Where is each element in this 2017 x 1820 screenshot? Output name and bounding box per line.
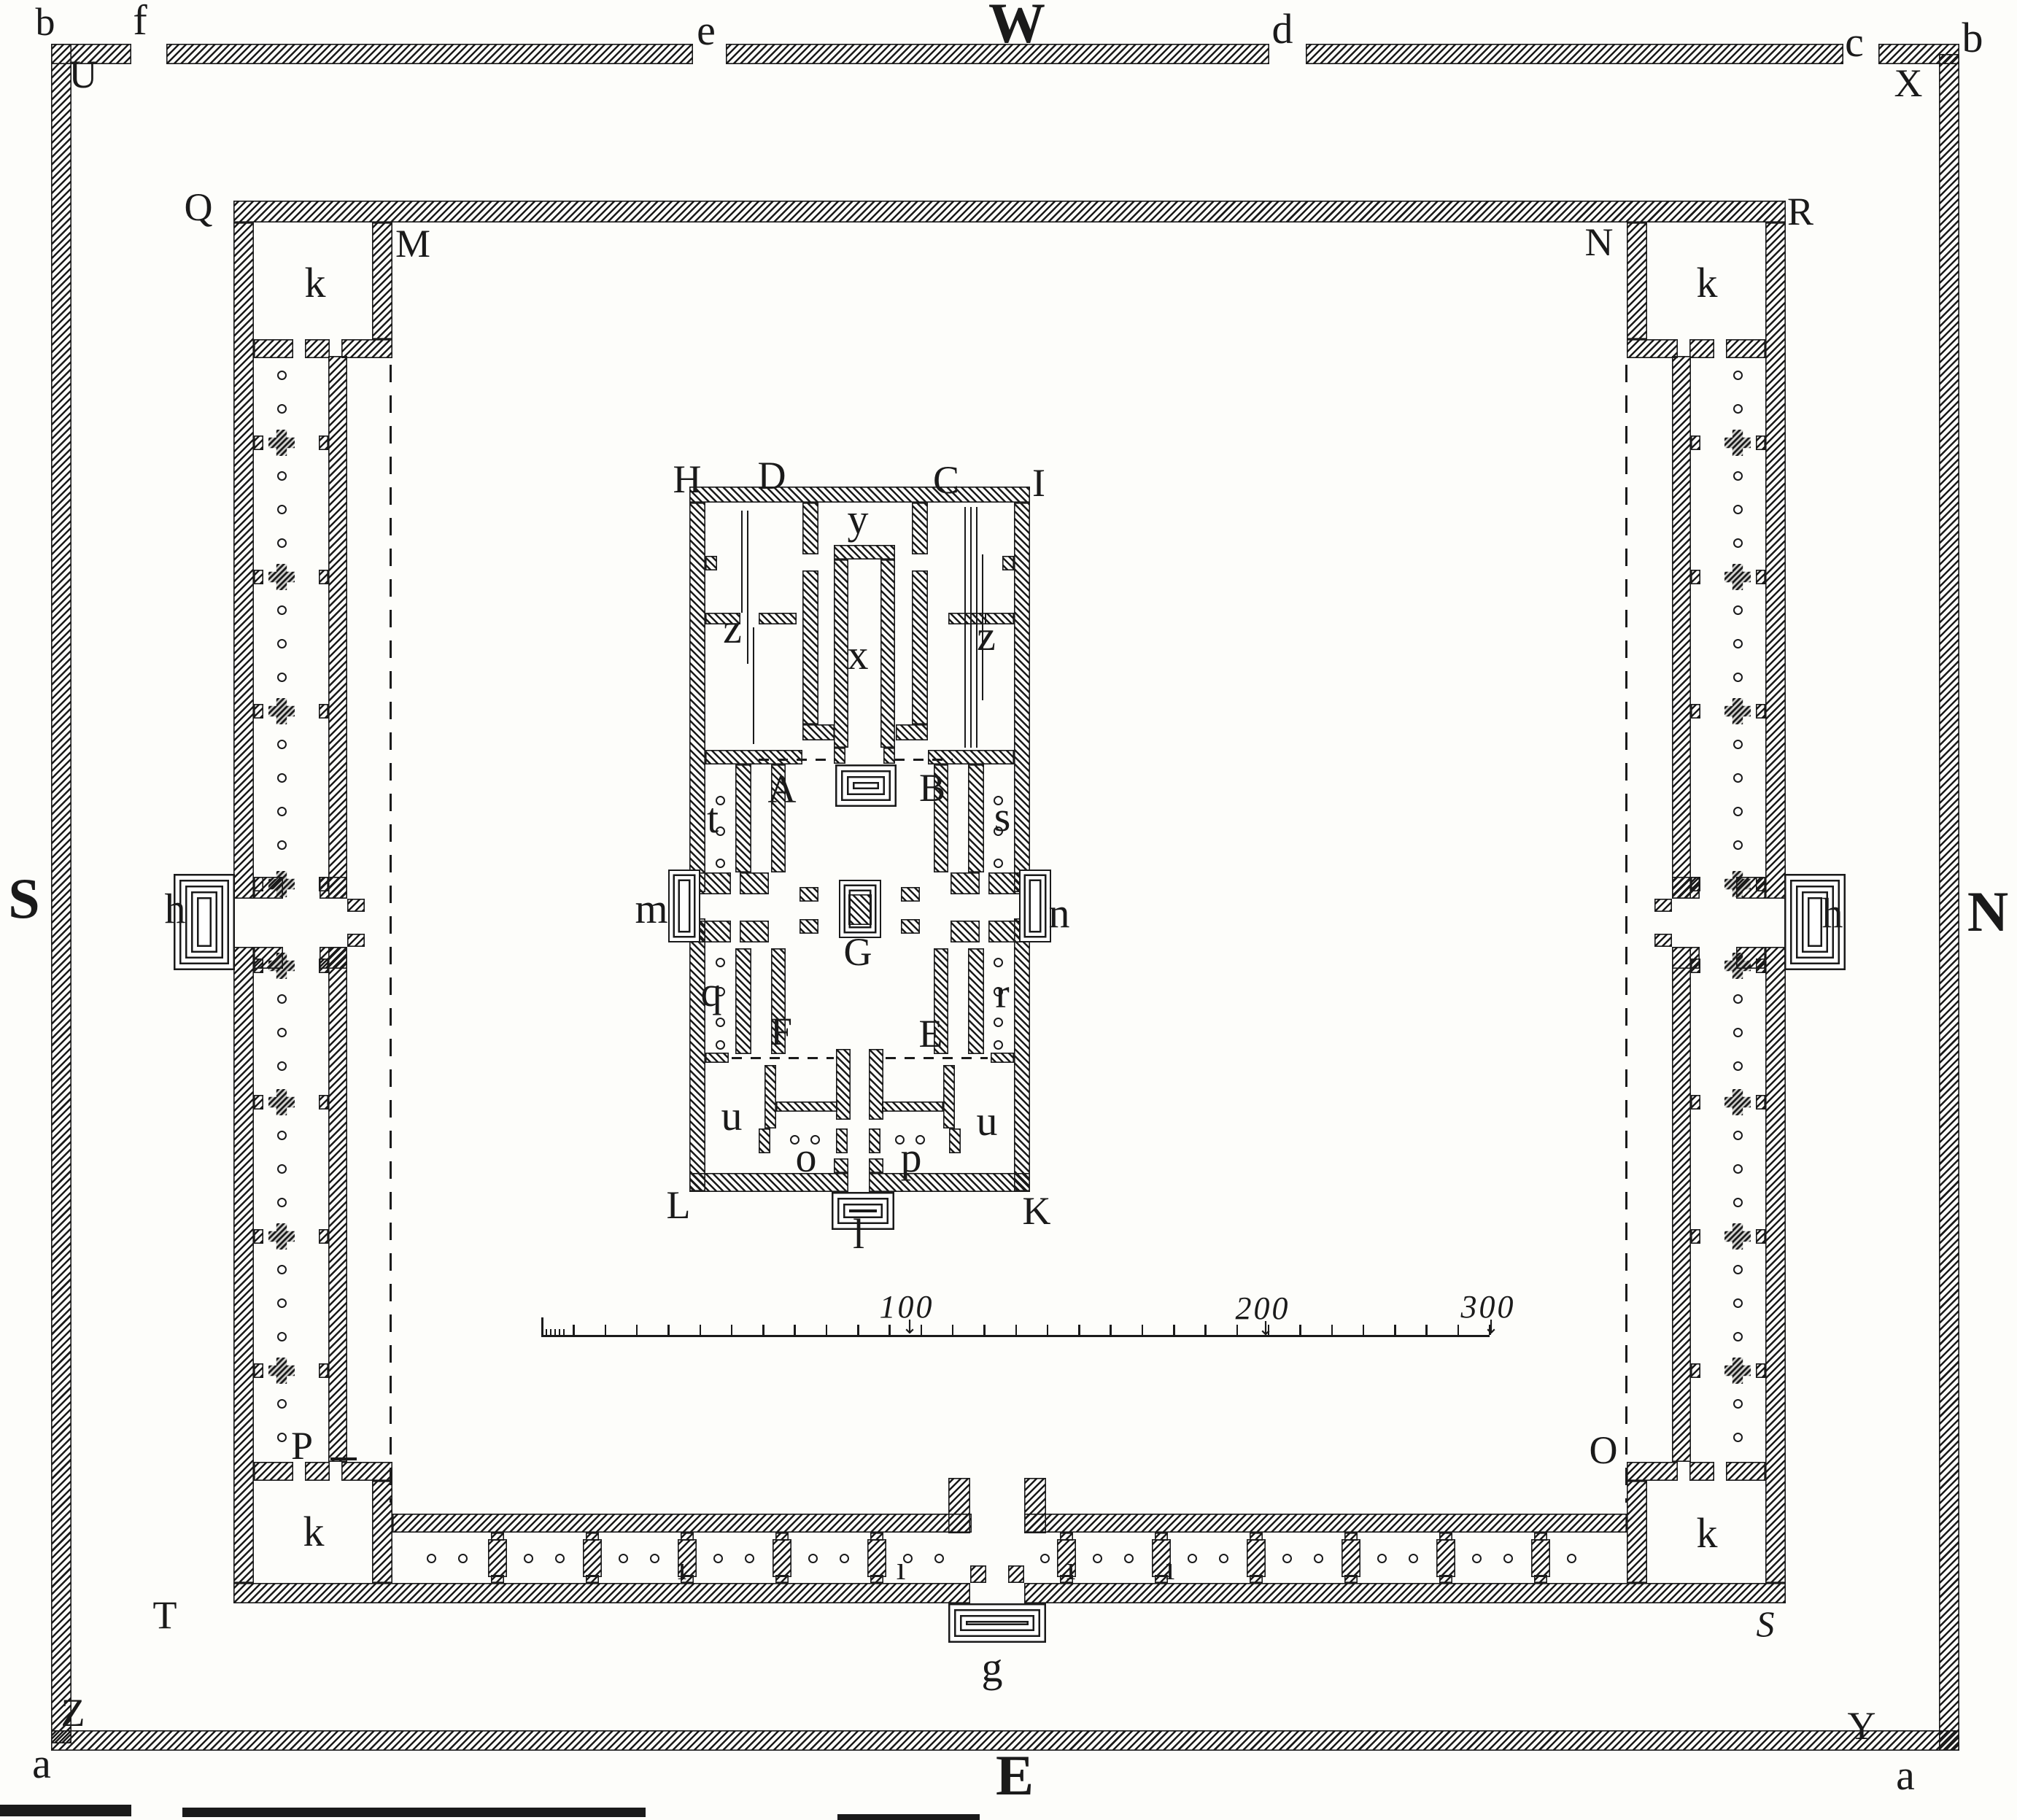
scale-tick <box>1425 1325 1428 1335</box>
wall-pilaster <box>1756 1229 1765 1244</box>
wall-pilaster <box>254 959 263 973</box>
scale-tick <box>1015 1325 1018 1335</box>
plan-label-O: O <box>1590 1430 1618 1470</box>
court-wing-wall <box>735 764 751 872</box>
scale-tick <box>1173 1325 1175 1335</box>
colonnade-inner-wall-left <box>328 947 347 1462</box>
wall-pilaster <box>1534 1575 1547 1583</box>
gate-l-pier <box>836 1049 851 1120</box>
plan-label-scale_300: 300 <box>1461 1291 1516 1323</box>
wall-pilaster <box>1060 1533 1073 1541</box>
column-dot <box>458 1554 468 1563</box>
cross-pier <box>1724 1223 1751 1250</box>
cross-pier <box>1724 430 1751 456</box>
hall-wall <box>991 1053 1014 1063</box>
plan-label-u_right: u <box>977 1100 998 1142</box>
column-dot <box>1124 1554 1134 1563</box>
plan-label-k_br: k <box>1697 1512 1718 1554</box>
column-dot <box>277 773 287 783</box>
wall-pilaster <box>775 1533 789 1541</box>
scale-tick <box>1363 1325 1365 1335</box>
wall-pilaster <box>319 1095 328 1110</box>
sanctuary-outer-wall <box>802 503 818 554</box>
gate-m-portal <box>668 870 700 942</box>
k-room-wall <box>1689 339 1714 358</box>
plan-label-k_tl: k <box>305 262 326 304</box>
plan-label-d: d <box>1272 8 1293 50</box>
enclosure-wall-left <box>233 222 254 899</box>
plan-label-E_court: E <box>919 1014 943 1053</box>
column-dot <box>1733 605 1743 615</box>
scale-tick <box>794 1325 796 1335</box>
column-dot <box>277 673 287 682</box>
column-dot <box>745 1554 754 1563</box>
wall-pilaster <box>1534 1533 1547 1541</box>
plan-label-y: y <box>848 498 869 541</box>
gate-m-pier <box>800 919 818 934</box>
shrine-jamb <box>834 748 845 764</box>
column-dot <box>277 471 287 481</box>
column-dot <box>277 1164 287 1174</box>
plan-label-F: F <box>770 1012 792 1051</box>
scale-tick <box>921 1325 923 1335</box>
texture-line <box>753 627 754 744</box>
column-dot <box>277 1198 287 1207</box>
plan-label-h_left: h <box>165 888 186 930</box>
column-dot <box>716 1018 725 1027</box>
k-room-wall <box>1726 1462 1765 1481</box>
plan-label-G: G <box>844 932 872 972</box>
column-dot <box>1733 994 1743 1004</box>
enclosure-wall-right <box>1765 947 1786 1583</box>
column-dot <box>1282 1554 1292 1563</box>
wall-pilaster <box>1756 435 1765 450</box>
scale-subtick <box>554 1329 556 1335</box>
sanctuary-outer-wall <box>912 570 928 724</box>
column-dot <box>1409 1554 1418 1563</box>
column-dot <box>1188 1554 1197 1563</box>
plan-label-P: P <box>291 1426 313 1465</box>
wall-pilaster <box>1691 1095 1700 1110</box>
column-dot <box>1733 371 1743 380</box>
scale-tick-end <box>541 1317 543 1335</box>
plan-label-E_compass: E <box>996 1747 1035 1804</box>
sanctuary-outer-wall <box>802 570 818 724</box>
scale-subtick <box>563 1329 565 1335</box>
colonnade-pier <box>1436 1539 1455 1577</box>
scale-tick <box>952 1325 954 1335</box>
plate-edge-strip <box>837 1814 980 1820</box>
column-dot <box>1733 1332 1743 1341</box>
wall-pilaster <box>1756 1095 1765 1110</box>
gate-g-pier <box>1024 1478 1046 1533</box>
outer-wall-right <box>1939 54 1959 1751</box>
texture-line <box>964 507 966 748</box>
gate-l-pier <box>869 1049 883 1120</box>
gate-n-jamb <box>951 872 980 894</box>
plan-label-e: e <box>697 9 716 52</box>
column-dot <box>934 1554 944 1563</box>
plan-label-Q: Q <box>185 187 213 227</box>
column-dot <box>1040 1554 1050 1563</box>
column-dot <box>1733 1164 1743 1174</box>
scale-subtick <box>546 1329 547 1335</box>
scale-tick <box>1078 1325 1080 1335</box>
wall-pilaster <box>870 1575 883 1583</box>
scale-tick <box>762 1325 764 1335</box>
column-dot <box>277 1028 287 1037</box>
wall-pilaster <box>254 1229 263 1244</box>
wall-pilaster <box>1756 959 1765 973</box>
cross-pier <box>268 698 295 724</box>
plan-label-b_tr: b <box>1962 17 1983 59</box>
gate-l-jamb <box>834 1158 848 1173</box>
gate-m-jamb <box>740 921 769 942</box>
column-dot <box>1472 1554 1482 1563</box>
sanctuary-outer-wall <box>912 503 928 554</box>
column-dot <box>277 505 287 514</box>
plate-edge-strip <box>182 1808 646 1817</box>
plan-label-i2: ı <box>897 1552 906 1585</box>
plan-label-K: K <box>1023 1191 1051 1231</box>
k-room-wall <box>1726 339 1765 358</box>
k-room-wall <box>254 339 293 358</box>
wall-pilaster <box>586 1575 599 1583</box>
colonnade-inner-wall-right <box>1672 356 1691 899</box>
hall-dashed-line <box>886 1057 988 1059</box>
gate-l-jamb <box>869 1158 883 1173</box>
column-dot <box>1733 1131 1743 1140</box>
column-dot <box>1733 740 1743 749</box>
inner-room-wall <box>776 1101 837 1112</box>
plan-label-N_wall: N <box>1585 222 1614 262</box>
court-wing-wall <box>968 948 984 1054</box>
column-dot <box>994 958 1003 967</box>
column-dot <box>1733 773 1743 783</box>
plan-label-T: T <box>153 1595 177 1635</box>
cross-pier <box>268 564 295 590</box>
plan-label-Y: Y <box>1848 1706 1876 1746</box>
scale-tick <box>636 1325 638 1335</box>
cross-pier <box>1724 1358 1751 1384</box>
scale-tick <box>857 1325 859 1335</box>
column-dot <box>1503 1554 1513 1563</box>
wall-pilaster <box>1250 1575 1263 1583</box>
plan-label-k_tr: k <box>1697 262 1718 304</box>
wall-pilaster <box>870 1533 883 1541</box>
plan-label-N_compass: N <box>1967 883 2010 940</box>
plan-label-m: m <box>635 888 667 930</box>
gate-n-jamb <box>988 921 1021 942</box>
scale-tick <box>1204 1325 1207 1335</box>
scale-tick <box>1394 1325 1396 1335</box>
enclosure-wall-bottom <box>1024 1583 1786 1603</box>
column-dot <box>1733 1265 1743 1274</box>
plan-label-u_left: u <box>721 1095 743 1137</box>
column-dot <box>277 404 287 414</box>
k-room-wall <box>1627 1481 1647 1583</box>
plan-label-X: X <box>1894 63 1923 103</box>
colonnade-pier <box>1342 1539 1360 1577</box>
column-dot <box>808 1554 818 1563</box>
plan-label-scale_200: 200 <box>1236 1293 1290 1325</box>
wall-pilaster <box>491 1575 504 1583</box>
enclosure-wall-top <box>233 201 1786 222</box>
plan-label-x: x <box>848 634 869 676</box>
plan-label-o: o <box>796 1136 817 1179</box>
plan-label-W: W <box>988 0 1047 52</box>
column-dot <box>277 1061 287 1071</box>
column-dot <box>277 605 287 615</box>
colonnade-pier <box>1531 1539 1550 1577</box>
colonnade-pier <box>867 1539 886 1577</box>
plan-label-s: s <box>994 796 1011 838</box>
gate-h-jamb <box>347 934 365 947</box>
plan-label-q: q <box>701 971 722 1013</box>
colonnade-inner-wall-right <box>1672 947 1691 1462</box>
wall-pilaster <box>775 1575 789 1583</box>
plan-label-z_left: z <box>723 608 742 650</box>
wall-pilaster <box>1691 570 1700 584</box>
plan-label-c: c <box>1845 21 1864 63</box>
shrine-jamb <box>883 748 895 764</box>
column-dot <box>427 1554 436 1563</box>
plan-label-H: H <box>673 460 702 499</box>
plan-label-k_bl: k <box>303 1511 325 1553</box>
column-dot <box>994 1040 1003 1050</box>
gate-n-portal <box>1019 870 1051 942</box>
cross-pier <box>268 1223 295 1250</box>
wall-pilaster <box>1439 1533 1452 1541</box>
column-dot <box>277 371 287 380</box>
plan-label-S_wall: S <box>1757 1606 1775 1642</box>
gate-m-pier <box>800 887 818 902</box>
plan-label-t: t <box>707 797 719 840</box>
gate-h-jamb <box>347 899 365 912</box>
scale-tick <box>1110 1325 1112 1335</box>
wall-pilaster <box>319 877 328 891</box>
gate-n-jamb <box>988 872 1021 894</box>
shrine-wall <box>834 559 848 748</box>
column-dot <box>1733 673 1743 682</box>
column-dot <box>1733 538 1743 548</box>
cross-pier <box>268 1089 295 1115</box>
temple-wall-bottom <box>689 1173 848 1192</box>
k-room-wall <box>1689 1462 1714 1481</box>
wall-pilaster <box>1439 1575 1452 1583</box>
central-altar-core <box>848 894 872 925</box>
plan-label-z_right: z <box>977 615 996 657</box>
column-dot <box>277 840 287 850</box>
plan-label-S_compass: S <box>8 870 41 927</box>
column-dot <box>1093 1554 1102 1563</box>
column-dot <box>1733 1061 1743 1071</box>
column-dot <box>1567 1554 1576 1563</box>
column-dot <box>994 859 1003 868</box>
gate-g-portal <box>948 1603 1046 1643</box>
court-dashed-line <box>759 759 836 761</box>
plan-label-R: R <box>1787 192 1813 231</box>
hall-dashed-line <box>732 1057 834 1059</box>
wall-pilaster <box>1250 1533 1263 1541</box>
portico-pier <box>836 1128 848 1153</box>
temple-wall-left <box>689 503 705 892</box>
cross-pier <box>268 1358 295 1384</box>
enclosure-wall-right <box>1765 222 1786 899</box>
temple-ground-plan: ↓↓↓bfeWdcbUXSNEZaYaQMNRPOTSkkkkhhgııııHD… <box>0 0 2017 1820</box>
chamber-partition <box>759 613 797 624</box>
gate-g-jamb <box>1008 1565 1024 1583</box>
wall-pilaster <box>1756 570 1765 584</box>
column-dot <box>555 1554 565 1563</box>
column-dot <box>619 1554 628 1563</box>
temple-wall-bottom <box>869 1173 1030 1192</box>
column-dot <box>1733 1433 1743 1442</box>
colonnade-wall-bottom <box>1024 1514 1627 1533</box>
gate-n-pier <box>901 887 920 902</box>
court-wing-wall <box>735 948 751 1054</box>
column-dot <box>1733 404 1743 414</box>
plan-label-scale_100: 100 <box>880 1291 934 1323</box>
k-room-wall <box>1627 1462 1678 1481</box>
plan-label-p: p <box>901 1136 922 1179</box>
temple-wall-right <box>1014 918 1030 1191</box>
sanctuary-outer-foot <box>896 724 928 740</box>
wall-pilaster <box>319 704 328 719</box>
wall-pilaster <box>254 1095 263 1110</box>
u-room-wall <box>764 1065 776 1128</box>
wall-pilaster <box>1691 1363 1700 1378</box>
column-dot <box>1733 505 1743 514</box>
plan-label-n: n <box>1049 892 1070 934</box>
court-dashed-line <box>894 759 953 761</box>
u-room-wall <box>943 1065 955 1128</box>
hall-wall <box>705 1053 729 1063</box>
wall-pilaster <box>1691 959 1700 973</box>
column-dot <box>840 1554 849 1563</box>
texture-line <box>741 511 743 613</box>
scale-tick <box>1142 1325 1144 1335</box>
scale-tick <box>667 1325 670 1335</box>
scale-subtick <box>550 1329 551 1335</box>
scale-tick <box>573 1325 575 1335</box>
gate-n-pier <box>901 919 920 934</box>
scale-tick <box>1331 1325 1333 1335</box>
column-dot <box>1733 1298 1743 1308</box>
outer-wall-top <box>1306 44 1843 64</box>
plan-label-C: C <box>933 460 959 500</box>
sanctuary-portal <box>835 764 897 807</box>
wall-pilaster <box>1002 556 1014 570</box>
column-dot <box>277 538 287 548</box>
colonnade-pier <box>1247 1539 1266 1577</box>
plan-label-r: r <box>995 972 1009 1015</box>
column-dot <box>277 1131 287 1140</box>
wall-pilaster <box>319 1363 328 1378</box>
roofline-dashed-left <box>390 365 392 1503</box>
cross-pier <box>268 430 295 456</box>
scale-tick <box>700 1325 702 1335</box>
colonnade-pier <box>488 1539 507 1577</box>
wall-pilaster <box>254 877 263 891</box>
colonnade-pier <box>773 1539 791 1577</box>
column-dot <box>1733 1028 1743 1037</box>
scale-subtick <box>559 1329 560 1335</box>
sanctuary-outer-foot <box>802 724 835 740</box>
column-dot <box>277 1399 287 1409</box>
texture-line <box>970 507 972 748</box>
column-dot <box>277 639 287 648</box>
plan-label-a_bl: a <box>32 1743 51 1785</box>
column-dot <box>277 807 287 816</box>
column-dot <box>524 1554 533 1563</box>
roofline-dashed-right <box>1625 365 1627 1503</box>
colonnade-wall-bottom <box>392 1514 972 1533</box>
wall-pilaster <box>1756 704 1765 719</box>
wall-pilaster <box>1344 1575 1358 1583</box>
temple-wall-left <box>689 918 705 1191</box>
plan-label-i3: ı <box>1066 1552 1076 1585</box>
column-dot <box>1219 1554 1228 1563</box>
plate-edge-strip <box>0 1805 131 1816</box>
plan-label-b_tl: b <box>36 2 55 42</box>
wall-pilaster <box>1691 704 1700 719</box>
wall-pilaster <box>491 1533 504 1541</box>
wall-pilaster <box>1344 1533 1358 1541</box>
column-dot <box>277 1332 287 1341</box>
tick-mark <box>330 1457 357 1460</box>
column-dot <box>1314 1554 1323 1563</box>
wall-pilaster <box>705 556 717 570</box>
column-dot <box>650 1554 659 1563</box>
plan-label-A: A <box>768 770 797 809</box>
gate-m-jamb <box>740 872 769 894</box>
k-room-wall <box>254 1462 293 1481</box>
court-wing-wall <box>968 764 984 872</box>
shrine-wall <box>834 545 895 559</box>
wall-pilaster <box>319 435 328 450</box>
wall-pilaster <box>254 570 263 584</box>
cross-pier <box>1724 564 1751 590</box>
plan-label-U: U <box>69 55 98 94</box>
k-room-wall <box>305 339 330 358</box>
gate-h-jamb <box>1654 934 1672 947</box>
column-dot <box>277 1298 287 1308</box>
temple-block-bottom <box>705 750 802 764</box>
column-dot <box>1733 1399 1743 1409</box>
wall-pilaster <box>319 959 328 973</box>
outer-wall-left <box>51 44 71 1743</box>
gate-g-jamb <box>970 1565 986 1583</box>
scale-tick <box>826 1325 828 1335</box>
wall-pilaster <box>254 704 263 719</box>
k-room-wall <box>1627 339 1678 358</box>
column-dot <box>1733 1198 1743 1207</box>
enclosure-wall-bottom <box>233 1583 970 1603</box>
wall-pilaster <box>1691 1229 1700 1244</box>
wall-pilaster <box>254 1363 263 1378</box>
column-dot <box>277 994 287 1004</box>
column-dot <box>994 1018 1003 1027</box>
shrine-wall <box>880 559 895 748</box>
scale-tick <box>889 1325 891 1335</box>
k-room-wall <box>372 222 392 339</box>
column-dot <box>277 740 287 749</box>
scale-tick <box>983 1325 986 1335</box>
plan-label-a_br: a <box>1896 1754 1915 1797</box>
gate-m-jamb <box>699 921 731 942</box>
colonnade-pier <box>583 1539 602 1577</box>
